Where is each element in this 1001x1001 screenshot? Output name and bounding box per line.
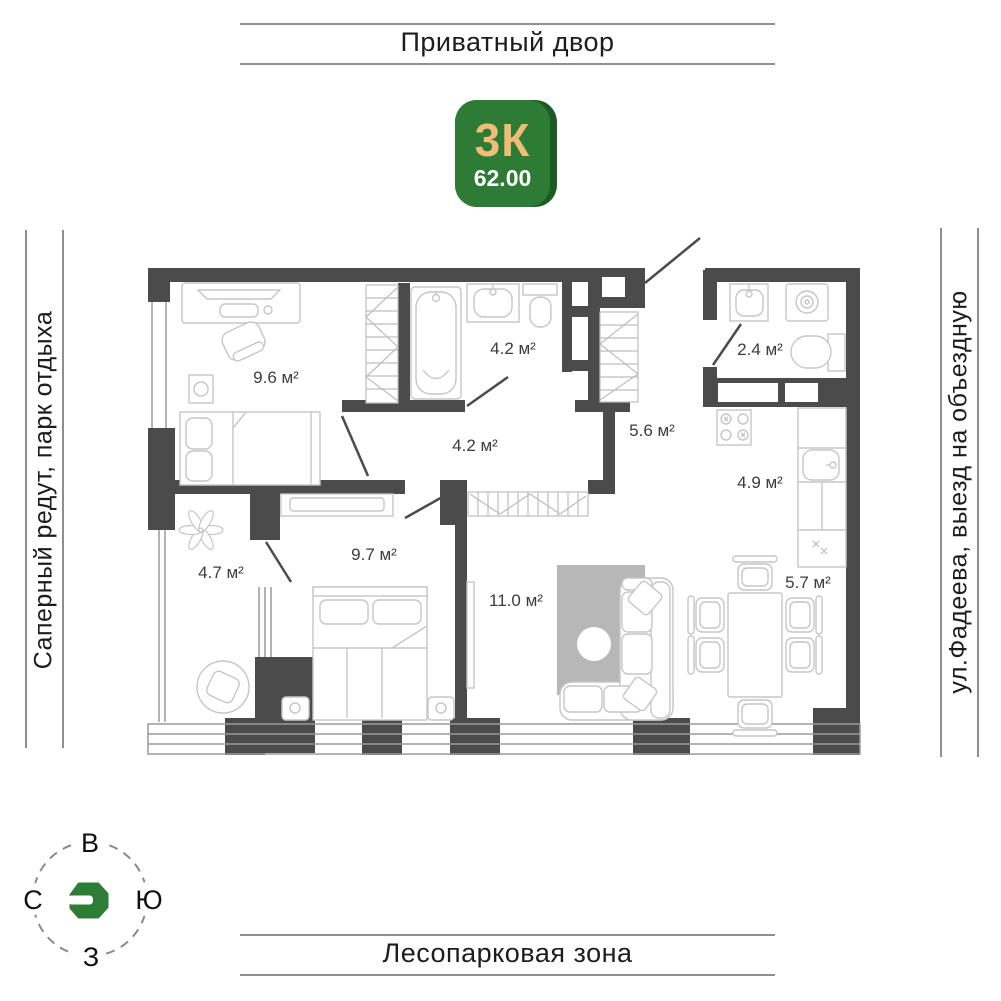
wardrobe-icon: [600, 312, 638, 402]
compass-north-letter: С: [23, 885, 43, 915]
rooms-count-label: 3К: [475, 116, 531, 164]
room-label-bedroom-1: 9.6 м²: [253, 368, 299, 387]
sink-icon: [730, 284, 768, 321]
east-area-label: ул.Фадеева, выезд на объездную: [945, 290, 974, 693]
plant-icon: [179, 509, 223, 552]
nightstand-icon: [189, 375, 213, 403]
stove-icon: [717, 410, 751, 445]
entry-coat-rack-icon: [468, 492, 588, 516]
left-rule-outer: [25, 230, 27, 748]
single-bed-icon: [180, 412, 320, 485]
chair-icon: [219, 319, 268, 364]
total-area-label: 62.00: [474, 164, 532, 192]
compass-east-letter: В: [81, 828, 99, 858]
header-rule-top: [240, 23, 775, 25]
coffee-table-icon: [577, 627, 611, 661]
compass-west-letter: З: [83, 942, 99, 972]
right-rule-inner: [940, 228, 942, 757]
room-label-living-room: 11.0 м²: [489, 591, 543, 610]
sink-icon: [467, 284, 519, 322]
south-area-label: Лесопарковая зона: [240, 938, 775, 969]
right-rule-outer: [977, 228, 979, 757]
room-label-bathroom: 4.2 м²: [490, 339, 536, 358]
brand-logo-icon: [68, 884, 107, 917]
compass-south-letter: Ю: [135, 885, 162, 915]
tv-icon: [467, 582, 474, 688]
toilet-icon: [791, 334, 845, 371]
room-label-bedroom-2: 9.7 м²: [351, 545, 397, 564]
room-label-balcony: 4.7 м²: [198, 563, 244, 582]
compass: В С Ю З: [12, 816, 176, 988]
footer-rule-bottom: [240, 974, 775, 976]
room-label-hallway: 4.2 м²: [452, 436, 498, 455]
double-bed-icon: [313, 587, 427, 720]
room-label-wc: 2.4 м²: [737, 340, 783, 359]
header-rule-bottom: [240, 63, 775, 65]
apartment-badge-face: 3К 62.00: [455, 100, 550, 207]
footer-rule-top: [240, 934, 775, 936]
left-rule-inner: [62, 230, 64, 748]
kitchen-counter-icon: [798, 408, 846, 567]
west-area-label: Саперный редут, парк отдыха: [30, 311, 59, 670]
room-label-corridor: 5.6 м²: [629, 421, 675, 440]
apartment-badge: 3К 62.00: [455, 100, 557, 207]
floor-plan: 9.6 м² 4.2 м² 4.2 м² 2.4 м² 5.6 м² 4.9 м…: [140, 230, 870, 770]
north-area-label: Приватный двор: [240, 27, 775, 58]
washing-machine-icon: [786, 284, 828, 321]
room-label-kitchen: 4.9 м²: [737, 473, 783, 492]
floorplan-page: Приватный двор 3К 62.00 Саперный редут, …: [0, 0, 1001, 1001]
toilet-icon: [523, 284, 557, 327]
dresser-icon: [281, 494, 393, 516]
round-chair-icon: [197, 661, 249, 713]
room-label-dining: 5.7 м²: [785, 573, 831, 592]
bathtub-icon: [411, 287, 461, 399]
wardrobe-icon: [366, 285, 398, 403]
desk-icon: [182, 283, 300, 323]
